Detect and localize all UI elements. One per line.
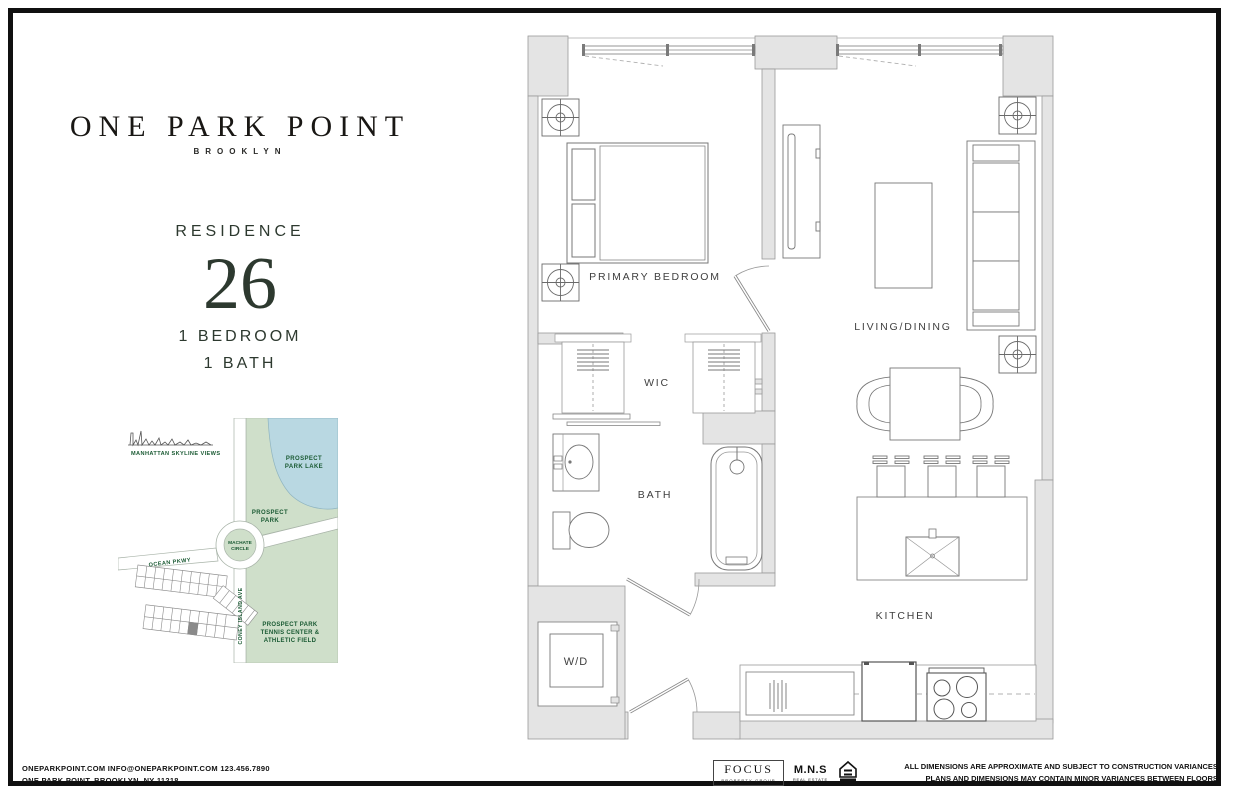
kitchen-island (857, 456, 1027, 580)
focus-logo-name: FOCUS (721, 762, 775, 777)
refrigerator (862, 662, 916, 721)
label-bath: BATH (638, 489, 672, 501)
dining-chair (959, 377, 993, 431)
equal-housing-icon (837, 759, 859, 787)
circle-label-1: MACHATE (228, 540, 252, 546)
bar-stools (873, 456, 1009, 497)
residence-bedrooms: 1 BEDROOM (58, 328, 422, 346)
highlighted-unit (188, 622, 198, 635)
kitchen-counter (740, 662, 1036, 721)
label-wic: WIC (644, 377, 670, 389)
label-kitchen: KITCHEN (876, 610, 935, 622)
bedroom-door (735, 266, 769, 331)
column-icon (999, 336, 1036, 373)
stool-seat (877, 466, 905, 497)
toilet-bowl (569, 513, 609, 548)
column-icon (542, 99, 579, 136)
pillow (572, 204, 595, 257)
footer-contact: ONEPARKPOINT.COM INFO@ONEPARKPOINT.COM 1… (22, 763, 270, 786)
stool-seat (977, 466, 1005, 497)
bath-fixtures (553, 434, 762, 570)
column-icon (542, 264, 579, 301)
residence-block: RESIDENCE 26 1 BEDROOM 1 BATH (58, 223, 422, 373)
coffee-table (875, 183, 932, 288)
dining-table (890, 368, 960, 440)
stool-seat (928, 466, 956, 497)
contact-line-1: ONEPARKPOINT.COM INFO@ONEPARKPOINT.COM 1… (22, 763, 270, 775)
sofa (967, 141, 1035, 330)
bath-door (627, 579, 699, 615)
residence-baths: 1 BATH (58, 355, 422, 373)
lake-label-2: PARK LAKE (285, 464, 323, 470)
brand-block: ONE PARK POINT BROOKLYN (58, 110, 422, 156)
disclaimer-line-1: ALL DIMENSIONS ARE APPROXIMATE AND SUBJE… (868, 761, 1220, 773)
residence-label: RESIDENCE (58, 223, 422, 241)
column-icon (999, 97, 1036, 134)
focus-logo: FOCUS PROPERTY GROUP (713, 760, 783, 786)
tv-console (783, 125, 820, 258)
tennis-label-3: ATHLETIC FIELD (264, 638, 317, 644)
manhattan-skyline-sketch (128, 431, 213, 445)
brand-name: ONE PARK POINT (58, 110, 422, 144)
mns-logo: M.N.S REAL ESTATE (793, 764, 828, 782)
lake-label-1: PROSPECT (286, 456, 322, 462)
mns-logo-name: M.N.S (793, 764, 828, 776)
range-stove (927, 668, 986, 721)
circle-label-2: CIRCLE (231, 546, 250, 552)
floor-plan: PRIMARY BEDROOM LIVING/DINING WIC BATH K… (525, 33, 1055, 750)
dining-set (857, 368, 993, 440)
bathtub (711, 447, 762, 570)
focus-logo-sub: PROPERTY GROUP (721, 778, 775, 783)
residence-number: 26 (58, 249, 422, 319)
mns-logo-sub: REAL ESTATE (793, 777, 828, 782)
floor-plan-svg: PRIMARY BEDROOM LIVING/DINING WIC BATH K… (525, 33, 1055, 745)
pocket-door (553, 414, 630, 419)
label-living-dining: LIVING/DINING (854, 321, 952, 333)
toilet-tank (553, 512, 570, 549)
footer-right: FOCUS PROPERTY GROUP M.N.S REAL ESTATE A… (713, 759, 1220, 787)
disclaimer-line-2: PLANS AND DIMENSIONS MAY CONTAIN MINOR V… (868, 773, 1220, 785)
dining-chair (857, 377, 891, 431)
contact-line-2: ONE PARK POINT, BROOKLYN, NY 11218 (22, 775, 270, 787)
entry-door (630, 679, 697, 712)
footer-disclaimer: ALL DIMENSIONS ARE APPROXIMATE AND SUBJE… (868, 761, 1220, 784)
label-primary-bedroom: PRIMARY BEDROOM (589, 271, 721, 283)
brand-location: BROOKLYN (58, 147, 422, 156)
skyline-label: MANHATTAN SKYLINE VIEWS (131, 451, 220, 457)
park-label-1: PROSPECT (252, 510, 288, 516)
tennis-label-1: PROSPECT PARK (262, 622, 317, 628)
pillow (572, 149, 595, 200)
coney-island-ave-label: CONEY ISLAND AVE (238, 587, 244, 644)
location-map-svg: MANHATTAN SKYLINE VIEWS PROSPECT PARK LA… (118, 418, 338, 663)
tennis-label-2: TENNIS CENTER & (261, 630, 320, 636)
location-map: MANHATTAN SKYLINE VIEWS PROSPECT PARK LA… (118, 418, 338, 668)
label-wd: W/D (564, 656, 588, 668)
dishwasher (746, 672, 854, 715)
park-label-2: PARK (261, 518, 279, 524)
bed (567, 143, 708, 263)
